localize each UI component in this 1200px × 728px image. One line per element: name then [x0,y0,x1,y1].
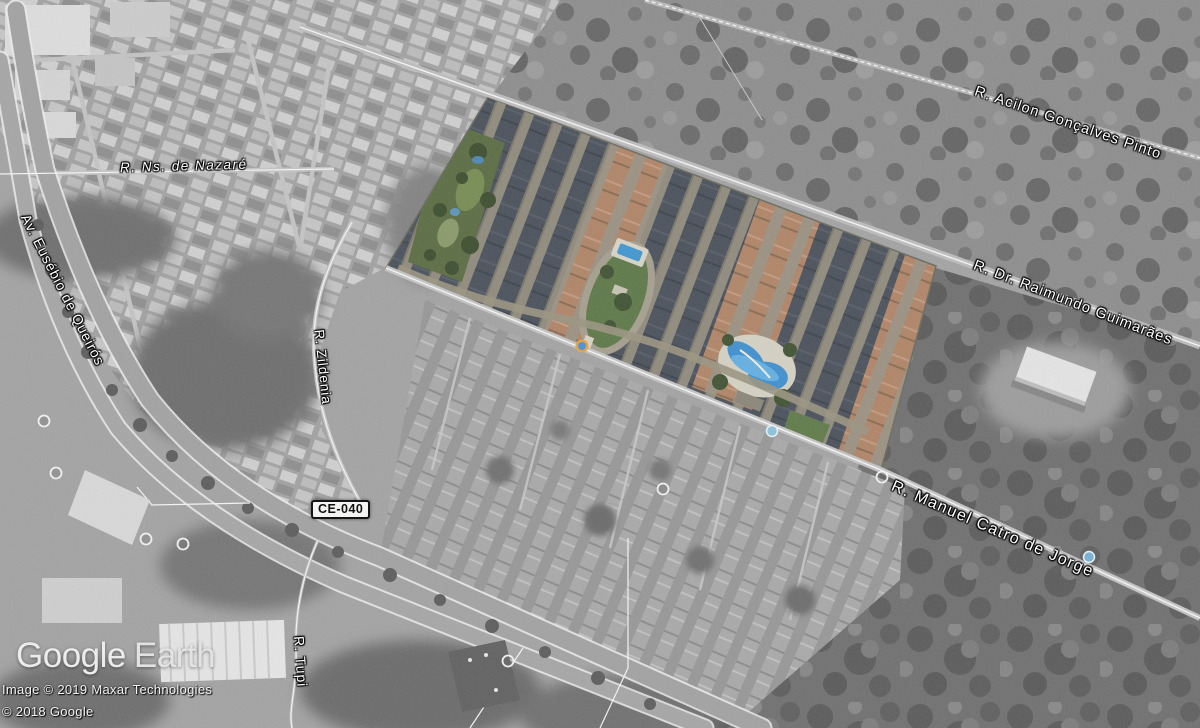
photo-grain-overlay [0,0,1200,728]
satellite-imagery [0,0,1200,728]
map-viewport[interactable]: R. Ns. de Nazaré Av. Eusébio de Queirós … [0,0,1200,728]
